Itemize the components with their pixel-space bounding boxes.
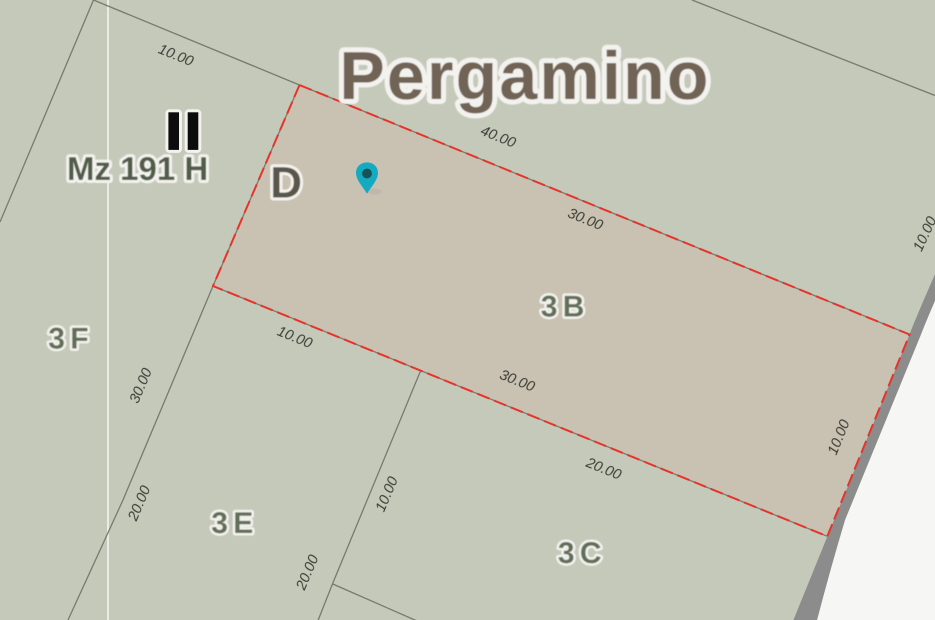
svg-text:3 C: 3 C <box>558 537 601 570</box>
svg-text:Mz 191 H: Mz 191 H <box>67 150 208 187</box>
svg-text:3 F: 3 F <box>48 322 88 355</box>
svg-text:3 E: 3 E <box>211 507 252 540</box>
svg-text:D: D <box>270 159 302 208</box>
svg-text:3 B: 3 B <box>541 291 584 324</box>
svg-text:Pergamino: Pergamino <box>339 38 710 114</box>
